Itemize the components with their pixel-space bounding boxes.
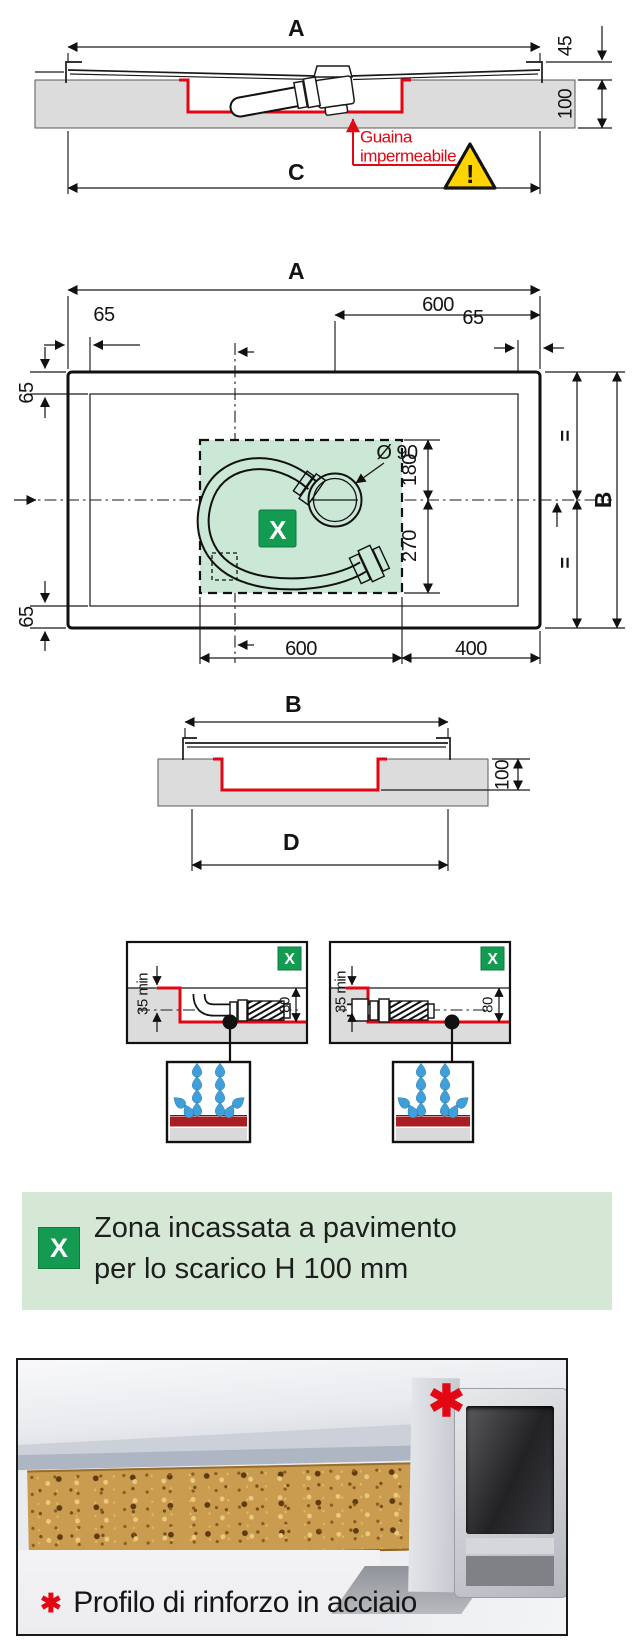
dim-400: 400	[402, 631, 540, 664]
dim-label-80: 80	[277, 997, 294, 1013]
shower-tray-section	[183, 738, 450, 760]
cross-section-a-diagram: A	[0, 0, 635, 238]
plan-view-diagram: A 600 65 65 65	[0, 245, 635, 675]
spray-box	[167, 1062, 250, 1142]
pipe-ring	[370, 1001, 378, 1020]
dim-label-80: 80	[480, 997, 497, 1013]
membrane-label-line2: impermeabile	[360, 147, 456, 166]
dim-a: A	[68, 15, 540, 62]
floor-slab	[158, 759, 488, 806]
connector-dot	[445, 1015, 460, 1030]
hose-fittings	[294, 77, 321, 109]
drain-flange	[314, 66, 352, 77]
spray-box	[393, 1062, 473, 1142]
drain-cup	[315, 76, 355, 109]
dim-label-45: 45	[556, 36, 577, 56]
x-marker-letter: X	[269, 515, 287, 545]
dim-d: D	[192, 809, 448, 871]
steel-profile-inner-shadow	[466, 1556, 554, 1586]
tray-right-edge	[436, 738, 450, 760]
x-marker-icon: X	[278, 947, 301, 970]
dim-label-100: 100	[493, 760, 514, 790]
dim-label-d: D	[283, 829, 299, 855]
detail-right: 35 min 80 X	[330, 942, 510, 1142]
membrane-label-line1: Guaina	[360, 128, 413, 147]
caption-text: Profilo di rinforzo in acciaio	[73, 1586, 417, 1619]
dim-label-35min: 35 min	[135, 973, 152, 1015]
dim-label-400: 400	[455, 638, 487, 660]
x-marker-letter: X	[50, 1233, 68, 1264]
screed-band	[396, 1128, 470, 1141]
waterproof-band	[396, 1117, 470, 1127]
legend-banner: X Zona incassata a pavimento per lo scar…	[22, 1192, 612, 1310]
drain-trap-body	[315, 76, 356, 117]
x-marker-letter: X	[487, 951, 498, 968]
warning-exclamation: !	[466, 159, 474, 189]
pipe-ring	[379, 999, 389, 1022]
dim-label-100: 100	[556, 89, 577, 119]
steel-profile-inner-lip	[466, 1538, 554, 1554]
legend-line2: per lo scarico H 100 mm	[94, 1249, 457, 1290]
x-marker-icon: X	[38, 1227, 80, 1269]
dim-label-600: 600	[285, 638, 317, 660]
legend-text: Zona incassata a pavimento per lo scaric…	[94, 1208, 457, 1290]
waterproof-band	[170, 1117, 247, 1127]
x-marker-icon: X	[259, 510, 296, 547]
dim-label-b: B	[590, 492, 616, 508]
tray-left-edge	[183, 738, 197, 760]
x-marker-letter: X	[284, 951, 295, 968]
chipboard-layer	[27, 1462, 455, 1559]
x-marker-icon: X	[481, 947, 504, 970]
dim-label-b: B	[285, 691, 301, 717]
dim-label-65: 65	[16, 382, 38, 404]
membrane-line	[213, 759, 387, 790]
photo-caption: ✱Profilo di rinforzo in acciaio	[40, 1586, 417, 1620]
dim-label-35min: 35 min	[333, 971, 350, 1013]
dim-label-65: 65	[16, 606, 38, 628]
legend-line1: Zona incassata a pavimento	[94, 1208, 457, 1249]
equal-sign: =	[555, 430, 577, 441]
pipe-ring	[238, 1000, 247, 1021]
dim-45: 45	[546, 26, 612, 62]
steel-profile-cavity	[466, 1406, 554, 1534]
dim-80: 80	[480, 988, 500, 1022]
dim-label-a: A	[288, 15, 304, 41]
caption-asterisk: ✱	[40, 1588, 61, 1618]
dim-label-c: C	[288, 159, 304, 185]
pipe-thread	[390, 1001, 428, 1020]
dim-b: B	[185, 691, 448, 738]
dim-label-a: A	[288, 258, 304, 284]
asterisk-marker: ✱	[428, 1380, 465, 1424]
dim-label-65: 65	[93, 304, 115, 326]
cross-section-b-diagram: B 100 D	[0, 680, 635, 895]
installation-diagram-page: A	[0, 0, 635, 1650]
drain-detail-diagrams: 35 min 80 X	[0, 920, 635, 1155]
dim-label-180: 180	[399, 454, 421, 486]
equal-sign: =	[555, 557, 577, 568]
pipe-nut	[352, 999, 368, 1021]
pipe-end	[428, 1004, 434, 1018]
dim-label-270: 270	[399, 530, 421, 562]
connector-dot	[223, 1015, 238, 1030]
detail-left: 35 min 80 X	[127, 942, 307, 1142]
dim-label-65: 65	[462, 307, 484, 329]
screed-band	[170, 1128, 247, 1141]
steel-profile-photo: ✱ ✱Profilo di rinforzo in acciaio	[16, 1358, 568, 1636]
dim-label-600-top: 600	[422, 294, 454, 316]
